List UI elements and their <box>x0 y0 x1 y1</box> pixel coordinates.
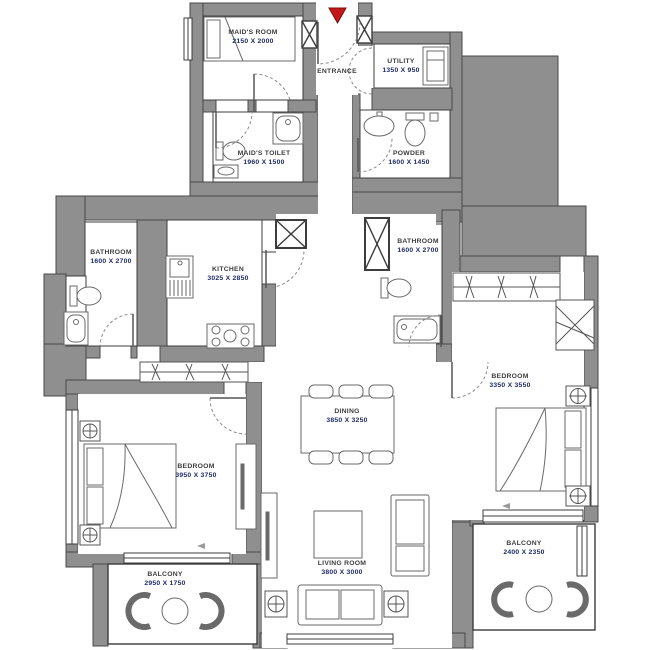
column-icon <box>80 525 100 545</box>
floor-plan-drawing <box>0 0 668 650</box>
washer-icon <box>423 47 448 85</box>
maids-toilet-sink-icon <box>214 165 238 178</box>
bedroom-left-bed-icon <box>84 444 176 528</box>
maids-toilet-wc-icon <box>216 142 245 160</box>
coffee-table-icon <box>314 511 362 558</box>
column-icon <box>566 486 590 506</box>
maids-bed-icon <box>204 17 295 61</box>
floor-plan: MAID'S ROOM2150 X 2000 ENTRANCE UTILITY1… <box>0 0 668 650</box>
dining-table-icon <box>301 385 394 464</box>
living-tv-unit-icon <box>261 493 277 578</box>
bedroom-left-tv-unit-icon <box>236 444 256 529</box>
wardrobe-bedroom-left-icon <box>140 362 248 382</box>
armchair-icon <box>391 495 429 576</box>
fridge-icon <box>276 220 306 248</box>
maids-toilet-bathtub-icon <box>273 113 303 144</box>
sofa-icon <box>298 585 382 625</box>
closet-bedroom-right-icon <box>556 300 594 350</box>
kitchen-sink-icon <box>166 256 193 298</box>
column-icon <box>265 591 287 617</box>
bathroom-right-bathtub-icon <box>394 316 440 343</box>
column-icon <box>80 421 100 441</box>
shower-icon <box>365 218 389 270</box>
column-icon <box>384 591 408 617</box>
bathroom-right-wc-icon <box>381 278 411 298</box>
column-icon <box>566 386 590 406</box>
stove-icon <box>207 324 254 348</box>
wardrobe-bedroom-right-icon <box>453 273 560 301</box>
entrance-jamb-left-icon <box>302 21 317 48</box>
bedroom-right-bed-icon <box>496 408 586 491</box>
bathroom-left-wc-icon <box>70 286 101 306</box>
bathroom-left-bathtub-icon <box>64 312 88 345</box>
